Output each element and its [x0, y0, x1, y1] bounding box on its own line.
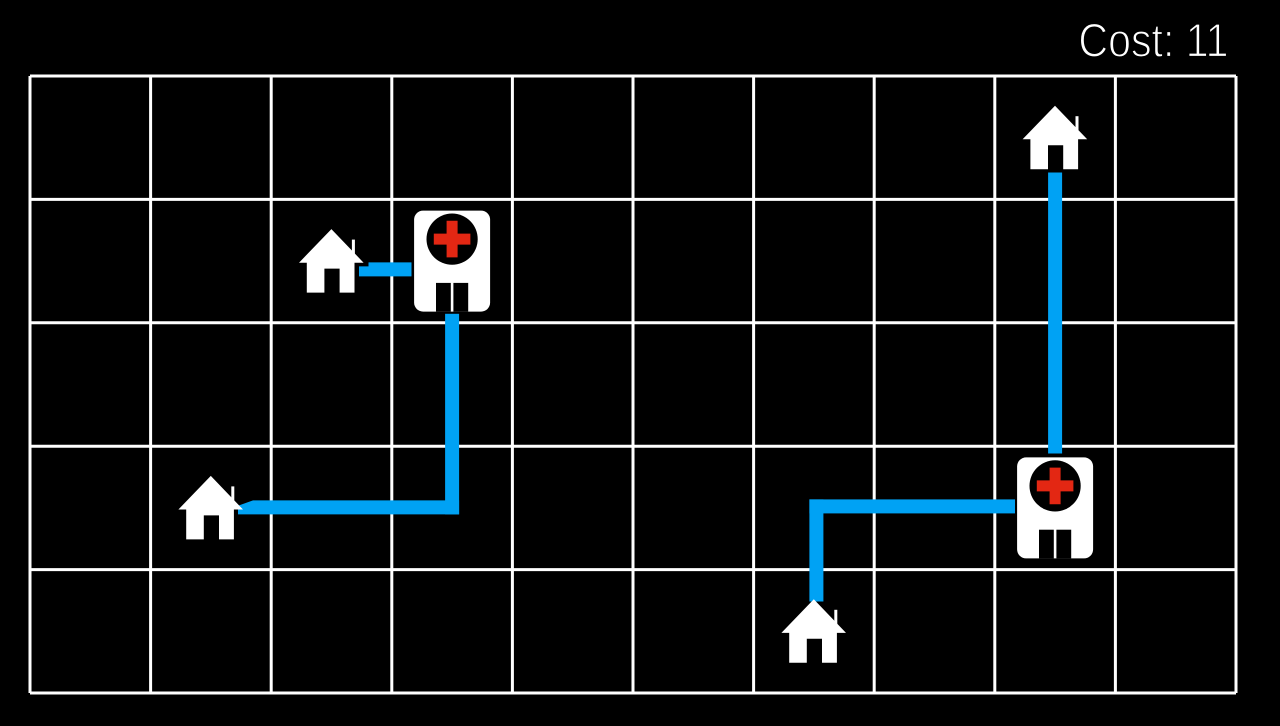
svg-text:Cost: 11: Cost: 11 [1078, 15, 1228, 67]
